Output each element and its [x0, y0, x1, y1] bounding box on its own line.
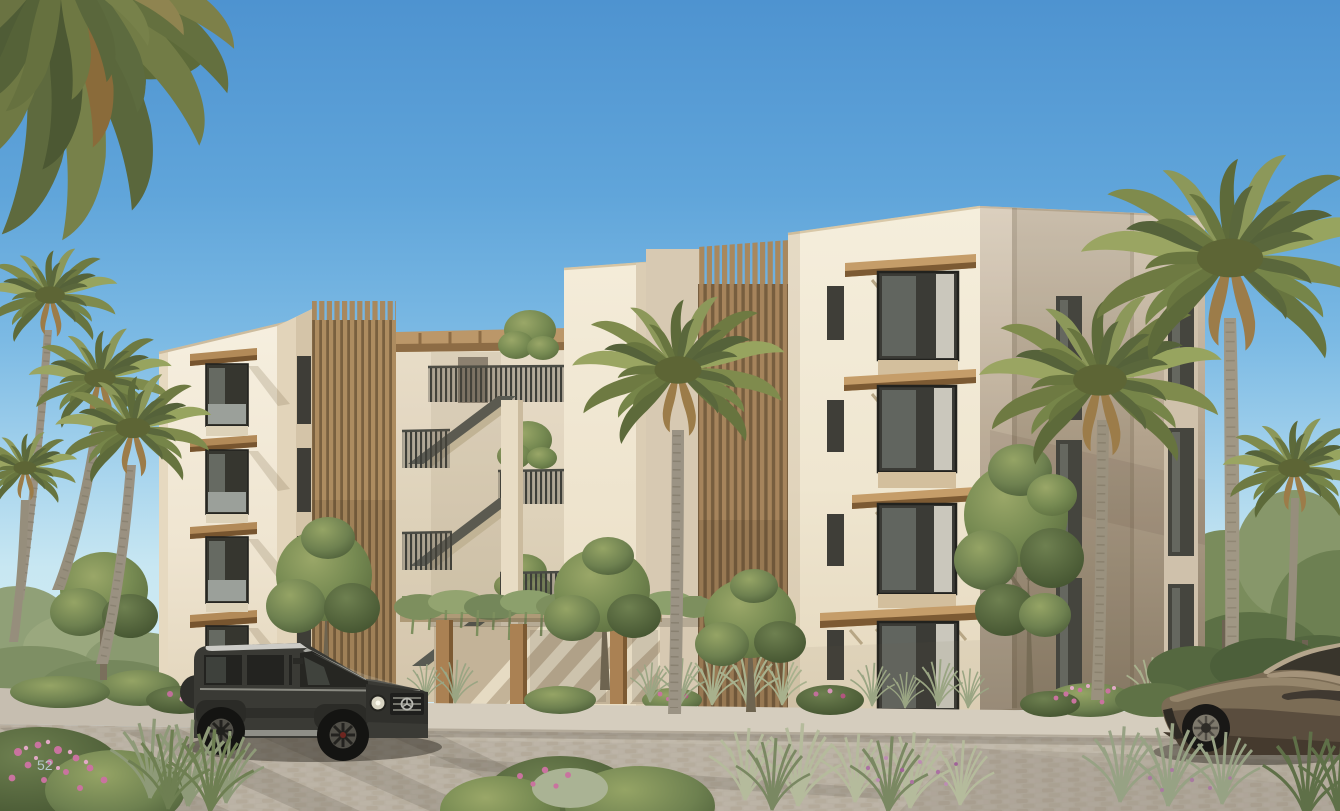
svg-text:52: 52	[37, 757, 53, 773]
